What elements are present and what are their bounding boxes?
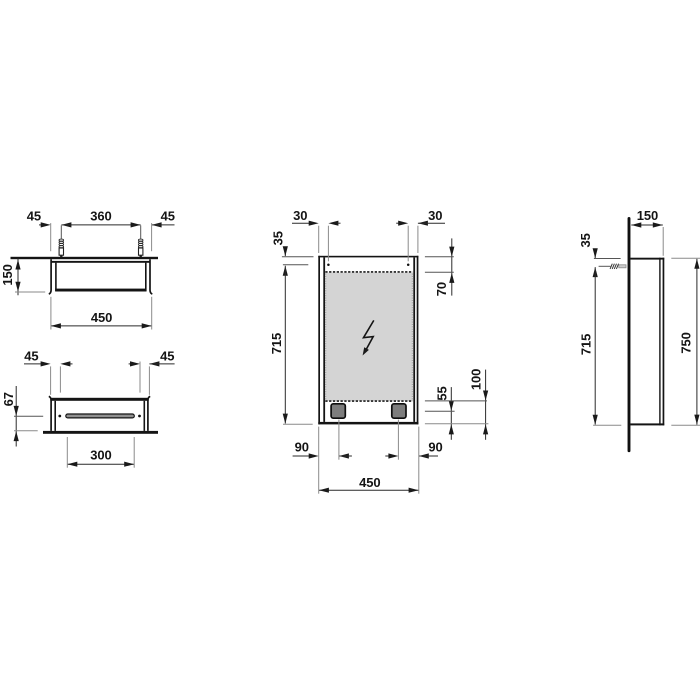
svg-text:715: 715 bbox=[269, 333, 284, 354]
svg-text:100: 100 bbox=[468, 369, 483, 390]
svg-text:55: 55 bbox=[434, 386, 449, 400]
svg-text:70: 70 bbox=[434, 282, 449, 296]
svg-text:45: 45 bbox=[161, 209, 175, 224]
svg-text:45: 45 bbox=[160, 349, 174, 364]
svg-text:360: 360 bbox=[90, 209, 111, 224]
svg-text:150: 150 bbox=[0, 264, 15, 285]
svg-text:45: 45 bbox=[24, 349, 38, 364]
svg-text:450: 450 bbox=[359, 475, 380, 490]
svg-text:45: 45 bbox=[27, 209, 41, 224]
svg-text:30: 30 bbox=[428, 208, 442, 223]
svg-text:30: 30 bbox=[293, 208, 307, 223]
svg-text:35: 35 bbox=[578, 233, 593, 247]
svg-text:300: 300 bbox=[90, 448, 111, 463]
svg-text:90: 90 bbox=[428, 440, 442, 455]
svg-text:715: 715 bbox=[579, 334, 594, 355]
svg-text:750: 750 bbox=[679, 332, 694, 353]
svg-text:35: 35 bbox=[270, 231, 285, 245]
svg-text:450: 450 bbox=[91, 310, 112, 325]
svg-text:67: 67 bbox=[1, 392, 16, 406]
svg-text:150: 150 bbox=[637, 208, 658, 223]
svg-text:90: 90 bbox=[295, 440, 309, 455]
